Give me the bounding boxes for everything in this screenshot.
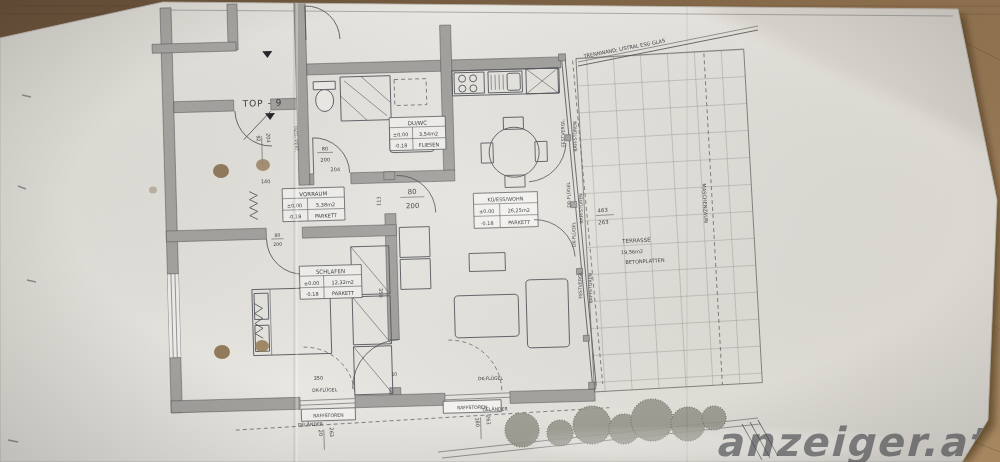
floorplan-photo: TOP - 9 92 204 HZG.-VERT. xyxy=(0,0,1000,462)
floorplan-svg: TOP - 9 92 204 HZG.-VERT. xyxy=(0,0,1000,462)
photo-vignette xyxy=(0,0,1000,462)
watermark-text: anzeiger.at xyxy=(715,419,991,462)
